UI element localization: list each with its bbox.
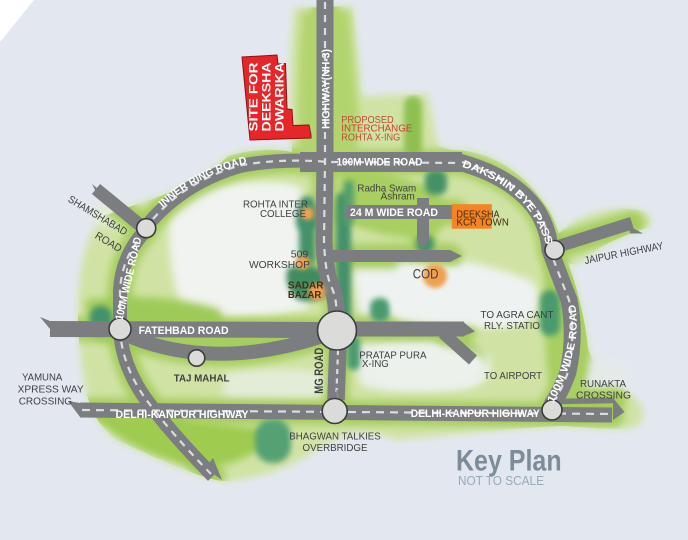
svg-text:DWARIKA: DWARIKA <box>273 62 287 131</box>
svg-text:100M WIDE ROAD: 100M WIDE ROAD <box>337 157 423 169</box>
svg-text:WORKSHOP: WORKSHOP <box>249 259 310 271</box>
svg-text:KCR TOWN: KCR TOWN <box>457 217 509 228</box>
svg-text:SITE FOR: SITE FOR <box>247 62 261 131</box>
svg-text:DELHI-KANPUR HIGHWAY: DELHI-KANPUR HIGHWAY <box>411 408 541 420</box>
svg-text:FATEHBAD ROAD: FATEHBAD ROAD <box>139 325 229 337</box>
svg-text:RLY. STATIO: RLY. STATIO <box>484 320 540 332</box>
svg-text:YAMUNA: YAMUNA <box>22 372 62 384</box>
svg-text:TAJ MAHAL: TAJ MAHAL <box>174 372 230 384</box>
svg-text:CROSSING: CROSSING <box>576 389 631 401</box>
svg-text:BAZAR: BAZAR <box>288 289 322 301</box>
svg-text:ROHTA X-ING: ROHTA X-ING <box>341 132 400 143</box>
svg-text:COD: COD <box>413 265 439 281</box>
svg-text:CROSSING: CROSSING <box>19 396 72 408</box>
svg-text:Ashram: Ashram <box>381 190 415 202</box>
svg-text:HIGHWAY(NH-3): HIGHWAY(NH-3) <box>321 49 333 129</box>
svg-text:OVERBRIDGE: OVERBRIDGE <box>303 442 368 454</box>
svg-text:XPRESS WAY: XPRESS WAY <box>18 384 84 396</box>
svg-text:24 M WIDE ROAD: 24 M WIDE ROAD <box>350 207 438 219</box>
svg-text:NOT TO SCALE: NOT TO SCALE <box>458 473 544 488</box>
svg-text:MG ROAD: MG ROAD <box>312 347 326 393</box>
svg-text:X-ING: X-ING <box>362 358 389 370</box>
svg-text:DELHI-KANPUR HIGHWAY: DELHI-KANPUR HIGHWAY <box>116 409 250 421</box>
svg-text:DEEKSHA: DEEKSHA <box>260 62 274 131</box>
svg-text:BHAGWAN TALKIES: BHAGWAN TALKIES <box>289 431 381 443</box>
svg-text:TO AIRPORT: TO AIRPORT <box>484 370 543 382</box>
svg-text:COLLEGE: COLLEGE <box>260 208 306 220</box>
